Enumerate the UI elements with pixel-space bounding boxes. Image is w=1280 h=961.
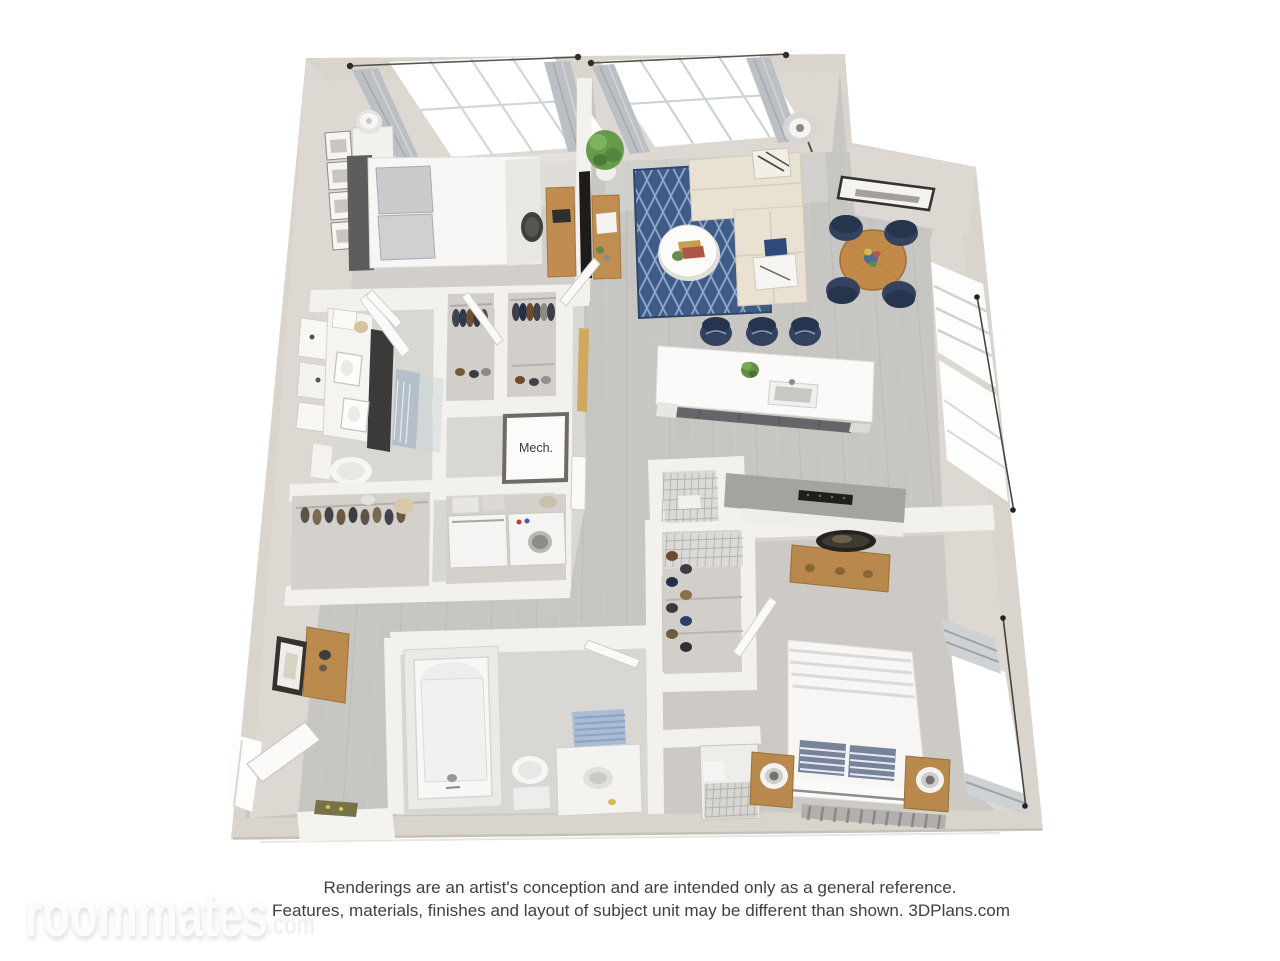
svg-text:roommates: roommates [25, 878, 268, 950]
svg-text:.com: .com [267, 908, 315, 941]
svg-text:Renderings are an artist's con: Renderings are an artist's conception an… [324, 879, 957, 897]
svg-text:Features, materials, finishes: Features, materials, finishes and layout… [272, 902, 1010, 920]
svg-text:Mech.: Mech. [519, 441, 553, 455]
